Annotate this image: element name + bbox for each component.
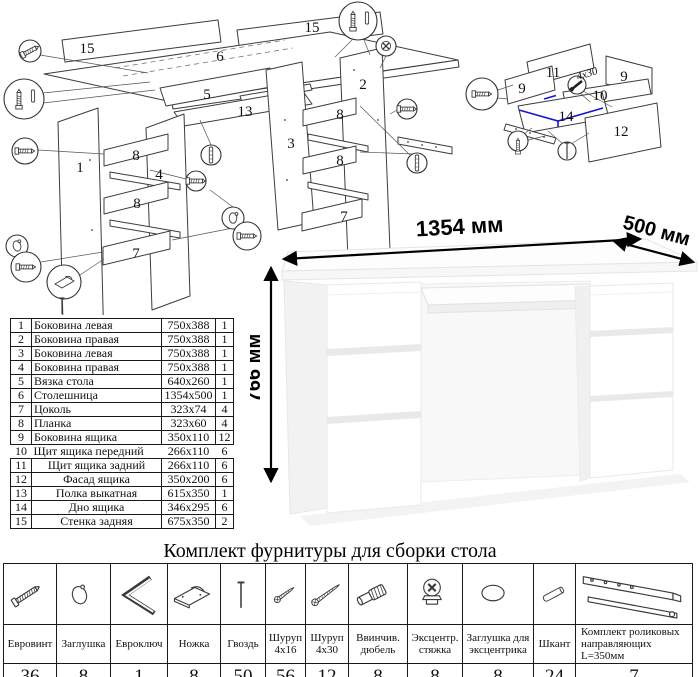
hardware-name: Эксцентр. стяжка <box>408 625 463 664</box>
part-number-label: 9 <box>518 81 526 97</box>
part-num: 8 <box>11 417 32 431</box>
height-dimension-label: 766 мм <box>250 334 265 403</box>
part-size: 640x260 <box>162 375 216 389</box>
part-qty: 1 <box>216 319 234 333</box>
hardware-name: Шкант <box>534 625 576 664</box>
table-row: 3Боковина левая750x3881 <box>11 347 234 361</box>
nail-icon <box>221 567 261 621</box>
part-num: 14 <box>11 501 32 515</box>
hardware-name: Комплект роликовых направляющих L=350мм <box>576 625 693 664</box>
part-name: Фасад ящика <box>32 473 162 487</box>
part-name: Боковина левая <box>32 319 162 333</box>
hardware-name: Шуруп 4x30 <box>306 625 349 664</box>
hardware-name: Ввинчив. дюбель <box>349 625 408 664</box>
part-qty: 1 <box>216 375 234 389</box>
part-qty: 4 <box>216 403 234 417</box>
part-name: Стенка задняя <box>32 515 162 529</box>
hardware-name: Евроключ <box>111 625 168 664</box>
part-name: Цоколь <box>32 403 162 417</box>
hardware-qty: 8 <box>168 664 221 677</box>
part-qty: 1 <box>216 347 234 361</box>
part-qty: 6 <box>216 445 234 459</box>
part-num: 15 <box>11 515 32 529</box>
table-row: 15Стенка задняя675x3502 <box>11 515 234 529</box>
table-row: 4Боковина правая750x3881 <box>11 361 234 375</box>
part-qty: 1 <box>216 389 234 403</box>
cap-icon <box>57 567 105 621</box>
part-size: 750x388 <box>162 361 216 375</box>
part-num: 4 <box>11 361 32 375</box>
table-row: 7Цоколь323x744 <box>11 403 234 417</box>
euro-screw-icon <box>4 567 52 621</box>
hardware-qty-row: 36 8 1 8 50 56 12 8 8 8 24 7 <box>4 664 693 677</box>
part-number-label: 7 <box>132 246 140 262</box>
hardware-name: Гвоздь <box>221 625 266 664</box>
hardware-qty: 8 <box>349 664 408 677</box>
part-number-label: 1 <box>76 160 84 176</box>
part-number-label: 6 <box>216 49 224 65</box>
part-number-label: 10 <box>593 88 608 104</box>
hardware-qty: 12 <box>306 664 349 677</box>
part-size: 750x388 <box>162 333 216 347</box>
part-size: 615x350 <box>162 487 216 501</box>
part-number-label: 8 <box>336 153 344 169</box>
hardware-qty: 50 <box>221 664 266 677</box>
width-dimension-label: 1354 мм <box>415 212 504 242</box>
part-size: 350x110 <box>162 431 216 445</box>
foot-icon <box>168 567 216 621</box>
part-num: 9 <box>11 431 32 445</box>
part-number-label: 5 <box>203 87 211 103</box>
part-num: 7 <box>11 403 32 417</box>
hardware-qty: 36 <box>4 664 57 677</box>
hardware-qty: 8 <box>408 664 463 677</box>
part-num: 13 <box>11 487 32 501</box>
part-number-label: 9 <box>620 69 628 85</box>
part-number-label: 15 <box>305 20 320 36</box>
hardware-kit-title: Комплект фурнитуры для сборки стола <box>0 540 660 563</box>
part-qty: 12 <box>216 431 234 445</box>
hardware-name: Шуруп 4x16 <box>266 625 306 664</box>
part-number-label: 8 <box>133 196 141 212</box>
part-qty: 4 <box>216 417 234 431</box>
hardware-name-row: Евровинт Заглушка Евроключ Ножка Гвоздь … <box>4 625 693 664</box>
part-num: 5 <box>11 375 32 389</box>
part-name: Полка выкатная <box>32 487 162 501</box>
parts-table: 1Боковина левая750x3881 2Боковина правая… <box>10 318 234 529</box>
part-qty: 1 <box>216 333 234 347</box>
right-pedestal <box>590 283 673 478</box>
part-num: 10 <box>11 445 32 459</box>
wood-dowel-icon <box>534 567 574 621</box>
screw-dowel-icon <box>349 567 399 621</box>
part-size: 266x110 <box>162 445 216 459</box>
part-qty: 6 <box>216 501 234 515</box>
part-size: 323x74 <box>162 403 216 417</box>
part-name: Щит ящика задний <box>32 459 162 473</box>
hardware-name: Заглушка <box>57 625 111 664</box>
hardware-qty: 7 <box>576 664 693 677</box>
part-name: Боковина левая <box>32 347 162 361</box>
part-size: 323x60 <box>162 417 216 431</box>
part-num: 11 <box>11 459 32 473</box>
hardware-name: Заглушка для эксцентрика <box>463 625 534 664</box>
part-num: 6 <box>11 389 32 403</box>
table-row: 12Фасад ящика350x2006 <box>11 473 234 487</box>
table-row: 1Боковина левая750x3881 <box>11 319 234 333</box>
hardware-name: Евровинт <box>4 625 57 664</box>
part-number-label: 12 <box>614 124 629 140</box>
part-num: 1 <box>11 319 32 333</box>
table-row: 2Боковина правая750x3881 <box>11 333 234 347</box>
part-qty: 1 <box>216 487 234 501</box>
part-number-label: 4 <box>155 167 163 183</box>
hardware-name: Ножка <box>168 625 221 664</box>
part-name: Боковина правая <box>32 333 162 347</box>
roller-guides-icon <box>576 567 688 621</box>
part-size: 675x350 <box>162 515 216 529</box>
part-name: Боковина правая <box>32 361 162 375</box>
part-size: 750x388 <box>162 347 216 361</box>
part-name: Дно ящика <box>32 501 162 515</box>
part-num: 3 <box>11 347 32 361</box>
hex-key-icon <box>111 567 161 621</box>
part-qty: 6 <box>216 459 234 473</box>
part-size: 750x388 <box>162 319 216 333</box>
table-row: 8Планка323x604 <box>11 417 234 431</box>
part-size: 266x110 <box>162 459 216 473</box>
part-qty: 1 <box>216 361 234 375</box>
cam-cap-icon <box>463 567 523 621</box>
hardware-qty: 1 <box>111 664 168 677</box>
table-row: 14Дно ящика346x2956 <box>11 501 234 515</box>
part-number-label: 15 <box>80 41 95 57</box>
hardware-qty: 56 <box>266 664 306 677</box>
part-number-label: 8 <box>336 107 344 123</box>
hardware-qty: 8 <box>57 664 111 677</box>
part-name: Столешница <box>32 389 162 403</box>
part-number-label: 13 <box>238 104 253 120</box>
assembly-instruction-sheet: 15 15 6 5 13 3 2 1 4 8 8 8 8 7 7 4x30 <box>0 0 700 677</box>
table-row: 9Боковина ящика350x11012 <box>11 431 234 445</box>
part-num: 2 <box>11 333 32 347</box>
part-name: Вязка стола <box>32 375 162 389</box>
part-number-label: 14 <box>559 109 575 125</box>
table-row: 11Щит ящика задний266x1106 <box>11 459 234 473</box>
part-qty: 2 <box>216 515 234 529</box>
hardware-qty: 8 <box>463 664 534 677</box>
part-number-label: 8 <box>132 148 140 164</box>
part-num: 12 <box>11 473 32 487</box>
left-pedestal <box>327 282 421 513</box>
cam-lock-icon <box>408 567 456 621</box>
part-qty: 6 <box>216 473 234 487</box>
part-size: 1354x500 <box>162 389 216 403</box>
screw-4x16-icon <box>266 567 304 621</box>
part-name: Планка <box>32 417 162 431</box>
screw-4x30-icon <box>306 567 347 621</box>
part-size: 346x295 <box>162 501 216 515</box>
part-number-label: 2 <box>359 77 367 93</box>
table-row: 6Столешница1354x5001 <box>11 389 234 403</box>
part-name: Щит ящика передний <box>32 445 162 459</box>
table-row: 5Вязка стола640x2601 <box>11 375 234 389</box>
hardware-qty: 24 <box>534 664 576 677</box>
part-number-label: 3 <box>287 136 295 152</box>
hardware-icon-row <box>4 564 693 625</box>
table-row: 13Полка выкатная615x3501 <box>11 487 234 501</box>
hardware-table: Евровинт Заглушка Евроключ Ножка Гвоздь … <box>3 563 693 677</box>
part-size: 350x200 <box>162 473 216 487</box>
table-row: 10Щит ящика передний266x1106 <box>11 445 234 459</box>
exploded-view-drawer: 4x30 11 9 9 10 14 12 <box>440 20 700 215</box>
part-name: Боковина ящика <box>32 431 162 445</box>
desk-dimension-figure: 1354 мм 500 мм 766 мм <box>250 210 700 555</box>
part-number-label: 11 <box>546 65 560 81</box>
